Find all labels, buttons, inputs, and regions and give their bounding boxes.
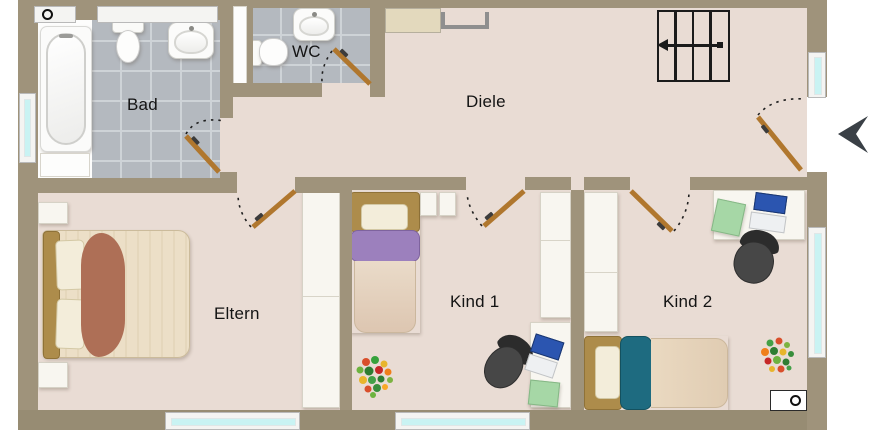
wc-toilet-bowl bbox=[259, 38, 288, 66]
bathroom-toilet-bowl bbox=[116, 30, 140, 63]
window-kind1-bottom bbox=[395, 412, 530, 430]
exterior-wall-left bbox=[18, 0, 38, 430]
wall-panel-lamp bbox=[34, 6, 76, 23]
nightstand bbox=[38, 202, 68, 224]
hall-sideboard bbox=[385, 8, 441, 33]
exterior-wall-top bbox=[253, 0, 827, 8]
bathtub-tap-icon bbox=[59, 34, 73, 38]
stairs-arrow-tail bbox=[717, 42, 723, 48]
window-bathroom-left bbox=[19, 93, 36, 163]
parents-double-bed bbox=[42, 230, 190, 358]
wall-kind2-top-left bbox=[584, 177, 630, 190]
bathtub-basin bbox=[46, 33, 86, 145]
tap-icon bbox=[312, 12, 317, 17]
kid1-shelf bbox=[540, 192, 571, 318]
room-label-wc: WC bbox=[292, 42, 321, 62]
stairs-arrow-head bbox=[657, 39, 668, 51]
stairs-direction-line bbox=[665, 44, 721, 47]
wall-wc-bottom bbox=[233, 83, 322, 97]
wall-wc-right bbox=[370, 0, 385, 97]
bed-body bbox=[651, 338, 728, 408]
bathtub bbox=[40, 26, 92, 152]
window-diele-right bbox=[808, 52, 826, 98]
bathroom-washbasin bbox=[168, 22, 214, 59]
bed-blanket bbox=[350, 230, 420, 262]
room-label-bad: Bad bbox=[127, 95, 158, 115]
ceiling-lamp-symbol bbox=[42, 9, 53, 20]
kid2-single-bed bbox=[584, 336, 728, 410]
wall-outlet-symbol bbox=[790, 395, 801, 406]
entry-arrow-icon bbox=[838, 116, 868, 153]
bed-blanket bbox=[620, 336, 652, 410]
wall-kind2-top-right bbox=[690, 177, 807, 190]
window-kind2-right bbox=[808, 227, 826, 358]
wall-bad-right bbox=[220, 97, 233, 118]
bath-mat bbox=[40, 153, 90, 177]
kid2-wardrobe bbox=[584, 192, 618, 332]
wc-washbasin bbox=[293, 8, 335, 41]
bed-pillow bbox=[595, 346, 620, 399]
room-label-diele: Diele bbox=[466, 92, 506, 112]
nightstand bbox=[38, 362, 68, 388]
parents-wardrobe bbox=[302, 192, 340, 408]
room-label-kind1: Kind 1 bbox=[450, 292, 499, 312]
floor-plan: Bad WC Diele Eltern Kind 1 Kind 2 bbox=[0, 0, 870, 443]
window-eltern-bottom bbox=[165, 412, 300, 430]
kid1-desk-mat bbox=[528, 380, 560, 408]
kid1-single-bed bbox=[350, 192, 420, 333]
room-label-kind2: Kind 2 bbox=[663, 292, 712, 312]
kid1-wardrobe bbox=[439, 192, 456, 216]
tap-icon bbox=[189, 26, 194, 31]
bed-blanket-fold bbox=[81, 233, 125, 357]
wall-kind1-kind2 bbox=[571, 190, 584, 410]
hall-shelf bbox=[441, 12, 489, 29]
wall-kind1-top-left bbox=[352, 177, 466, 190]
room-label-eltern: Eltern bbox=[214, 304, 260, 324]
wall-outlet-panel bbox=[770, 390, 807, 411]
wall-panel bbox=[97, 6, 218, 23]
stairs-icon bbox=[657, 10, 730, 82]
duct-panel bbox=[233, 6, 247, 88]
wall-bad-bottom bbox=[18, 178, 237, 193]
wall-eltern-kind1 bbox=[340, 190, 352, 410]
bed-pillow bbox=[361, 204, 408, 230]
entrance-opening bbox=[807, 97, 827, 172]
wall-kind1-top-right bbox=[525, 177, 571, 190]
bed-body bbox=[354, 261, 416, 333]
kid1-wardrobe bbox=[420, 192, 437, 216]
